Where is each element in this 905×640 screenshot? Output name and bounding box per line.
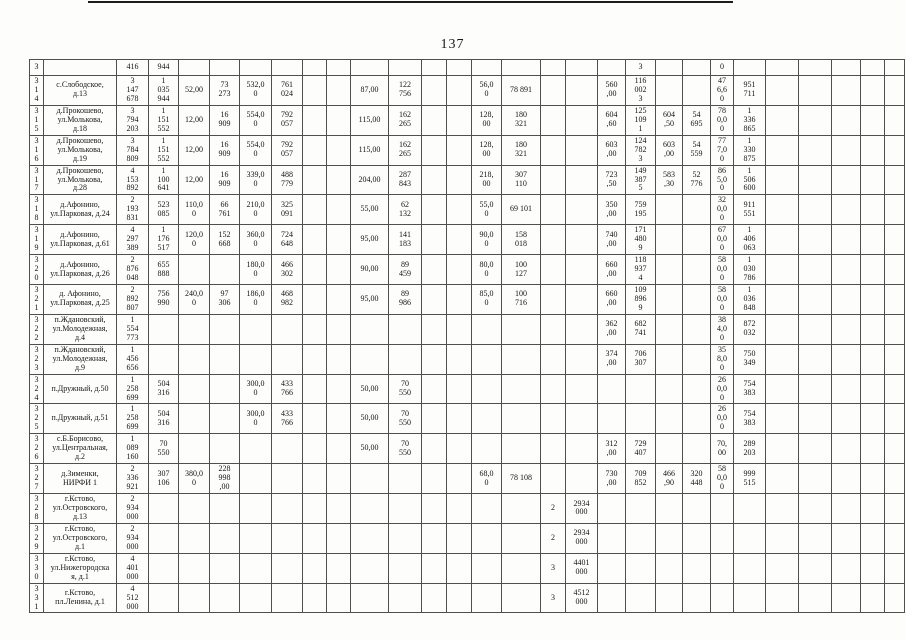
value-cell — [179, 523, 210, 553]
value-cell: 2 876 048 — [117, 255, 149, 285]
value-cell: 70 550 — [149, 434, 179, 464]
value-cell — [447, 583, 472, 613]
value-cell — [566, 404, 598, 434]
address-cell: г.Кстово, ул.Нижегородска я, д.1 — [44, 553, 117, 583]
value-cell — [656, 285, 683, 315]
value-cell — [303, 404, 327, 434]
value-cell: 85,0 0 — [472, 285, 502, 315]
value-cell: 1 151 552 — [149, 135, 179, 165]
value-cell: 120,0 0 — [179, 225, 210, 255]
address-cell: д. Афонино, ул.Парковая, д.25 — [44, 285, 117, 315]
value-cell — [541, 344, 566, 374]
table-row: 341694430 — [30, 60, 905, 76]
value-cell — [502, 60, 541, 76]
value-cell — [541, 285, 566, 315]
row-number-cell: 3 1 4 — [30, 76, 44, 106]
value-cell: 70 550 — [389, 374, 422, 404]
value-cell — [472, 553, 502, 583]
value-cell — [766, 314, 799, 344]
value-cell — [272, 434, 303, 464]
value-cell — [541, 195, 566, 225]
value-cell — [832, 583, 861, 613]
value-cell: 12,00 — [179, 165, 210, 195]
value-cell — [502, 583, 541, 613]
value-cell: 603 ,00 — [598, 135, 626, 165]
value-cell — [472, 494, 502, 524]
value-cell — [327, 165, 351, 195]
value-cell: 325 091 — [272, 195, 303, 225]
value-cell — [149, 494, 179, 524]
value-cell: 1 554 773 — [117, 314, 149, 344]
row-number-cell: 3 2 7 — [30, 464, 44, 494]
table-row: 3 2 2п.Ждановский, ул.Молодежная, д.41 5… — [30, 314, 905, 344]
value-cell — [861, 553, 885, 583]
table-row: 3 1 9д.Афонино, ул.Парковая, д.614 297 3… — [30, 225, 905, 255]
value-cell — [447, 76, 472, 106]
value-cell — [766, 60, 799, 76]
value-cell — [149, 523, 179, 553]
row-number-cell: 3 3 0 — [30, 553, 44, 583]
value-cell — [766, 434, 799, 464]
value-cell: 115,00 — [351, 105, 389, 135]
value-cell — [861, 314, 885, 344]
value-cell — [832, 76, 861, 106]
value-cell: 180 321 — [502, 135, 541, 165]
value-cell — [422, 105, 447, 135]
value-cell: 2 193 831 — [117, 195, 149, 225]
value-cell — [272, 523, 303, 553]
value-cell: 38 4,0 0 — [711, 314, 734, 344]
value-cell — [799, 314, 832, 344]
value-cell: 1 030 786 — [734, 255, 766, 285]
value-cell — [566, 434, 598, 464]
value-cell: 951 711 — [734, 76, 766, 106]
value-cell — [149, 583, 179, 613]
value-cell — [683, 523, 711, 553]
value-cell: 761 024 — [272, 76, 303, 106]
value-cell: 152 668 — [210, 225, 240, 255]
value-cell — [861, 344, 885, 374]
value-cell — [541, 135, 566, 165]
value-cell — [766, 583, 799, 613]
address-cell: с.Слободское, д.13 — [44, 76, 117, 106]
value-cell — [656, 494, 683, 524]
value-cell — [327, 285, 351, 315]
value-cell — [179, 60, 210, 76]
value-cell — [422, 195, 447, 225]
value-cell: 66 761 — [210, 195, 240, 225]
value-cell — [447, 434, 472, 464]
value-cell — [656, 255, 683, 285]
value-cell — [799, 225, 832, 255]
data-table: 3416944303 1 4с.Слободское, д.133 147 67… — [29, 59, 905, 613]
value-cell — [351, 523, 389, 553]
value-cell — [683, 344, 711, 374]
value-cell — [566, 344, 598, 374]
table-row: 3 2 7д.Зименки, НИРФИ 12 336 921307 1063… — [30, 464, 905, 494]
value-cell — [447, 195, 472, 225]
value-cell — [832, 165, 861, 195]
value-cell — [626, 404, 656, 434]
value-cell — [327, 434, 351, 464]
value-cell: 52,00 — [179, 76, 210, 106]
value-cell — [799, 76, 832, 106]
value-cell: 69 101 — [502, 195, 541, 225]
value-cell — [210, 60, 240, 76]
value-cell: 58 0,0 0 — [711, 285, 734, 315]
value-cell — [179, 344, 210, 374]
value-cell — [861, 434, 885, 464]
value-cell — [832, 494, 861, 524]
address-cell: д.Афонино, ул.Парковая, д.61 — [44, 225, 117, 255]
value-cell — [351, 583, 389, 613]
value-cell — [303, 255, 327, 285]
value-cell — [422, 60, 447, 76]
value-cell — [240, 494, 272, 524]
value-cell — [832, 135, 861, 165]
value-cell — [502, 553, 541, 583]
value-cell: 380,0 0 — [179, 464, 210, 494]
value-cell — [303, 60, 327, 76]
value-cell — [861, 583, 885, 613]
value-cell: 944 — [149, 60, 179, 76]
value-cell: 1 176 517 — [149, 225, 179, 255]
value-cell: 158 018 — [502, 225, 541, 255]
table-row: 3 2 0д.Афонино, ул.Парковая, д.262 876 0… — [30, 255, 905, 285]
value-cell — [656, 225, 683, 255]
value-cell — [472, 60, 502, 76]
value-cell: 77 7,0 0 — [711, 135, 734, 165]
value-cell — [149, 553, 179, 583]
value-cell: 660 ,00 — [598, 285, 626, 315]
value-cell — [179, 404, 210, 434]
address-cell: д.Афонино, ул.Парковая, д.24 — [44, 195, 117, 225]
row-number-cell: 3 2 4 — [30, 374, 44, 404]
value-cell — [422, 404, 447, 434]
value-cell — [799, 60, 832, 76]
value-cell: 1 330 875 — [734, 135, 766, 165]
value-cell — [683, 374, 711, 404]
value-cell: 109 896 9 — [626, 285, 656, 315]
value-cell — [832, 523, 861, 553]
value-cell — [885, 165, 905, 195]
value-cell — [766, 165, 799, 195]
scan-edge-line — [88, 1, 733, 3]
value-cell — [303, 105, 327, 135]
value-cell — [566, 255, 598, 285]
value-cell — [327, 523, 351, 553]
value-cell: 2 892 807 — [117, 285, 149, 315]
value-cell: 70, 00 — [711, 434, 734, 464]
value-cell: 186,0 0 — [240, 285, 272, 315]
value-cell — [766, 553, 799, 583]
value-cell — [598, 494, 626, 524]
value-cell — [885, 285, 905, 315]
value-cell: 141 183 — [389, 225, 422, 255]
value-cell: 488 779 — [272, 165, 303, 195]
value-cell: 682 741 — [626, 314, 656, 344]
value-cell: 1 036 848 — [734, 285, 766, 315]
value-cell — [447, 255, 472, 285]
row-number-cell: 3 1 5 — [30, 105, 44, 135]
value-cell: 416 — [117, 60, 149, 76]
value-cell — [327, 553, 351, 583]
value-cell — [541, 404, 566, 434]
value-cell — [656, 553, 683, 583]
value-cell: 1 258 699 — [117, 404, 149, 434]
value-cell — [683, 195, 711, 225]
table-row: 3 3 1г.Кстово, пл.Ленина, д.14 512 00034… — [30, 583, 905, 613]
value-cell: 754 383 — [734, 374, 766, 404]
value-cell — [683, 404, 711, 434]
value-cell — [327, 135, 351, 165]
value-cell: 2 934 000 — [117, 494, 149, 524]
address-cell: с.Б.Борисово, ул.Центральная, д.2 — [44, 434, 117, 464]
value-cell — [422, 165, 447, 195]
value-cell — [766, 76, 799, 106]
value-cell — [447, 464, 472, 494]
value-cell — [598, 60, 626, 76]
value-cell: 55,00 — [351, 195, 389, 225]
value-cell — [351, 344, 389, 374]
value-cell — [472, 314, 502, 344]
value-cell — [656, 60, 683, 76]
value-cell: 287 843 — [389, 165, 422, 195]
value-cell — [472, 434, 502, 464]
value-cell: 1 406 063 — [734, 225, 766, 255]
value-cell — [210, 583, 240, 613]
value-cell: 115,00 — [351, 135, 389, 165]
value-cell — [861, 494, 885, 524]
value-cell: 54 559 — [683, 135, 711, 165]
value-cell — [832, 105, 861, 135]
value-cell: 2934 000 — [566, 523, 598, 553]
value-cell — [683, 583, 711, 613]
value-cell: 70 550 — [389, 404, 422, 434]
row-number-cell: 3 2 9 — [30, 523, 44, 553]
value-cell — [389, 464, 422, 494]
value-cell: 750 349 — [734, 344, 766, 374]
value-cell: 724 648 — [272, 225, 303, 255]
value-cell — [766, 105, 799, 135]
value-cell — [240, 60, 272, 76]
value-cell — [447, 285, 472, 315]
value-cell: 1 151 552 — [149, 105, 179, 135]
value-cell — [149, 344, 179, 374]
value-cell: 730 ,00 — [598, 464, 626, 494]
value-cell — [210, 553, 240, 583]
row-number-cell: 3 3 1 — [30, 583, 44, 613]
value-cell — [327, 314, 351, 344]
value-cell — [541, 374, 566, 404]
value-cell: 16 909 — [210, 165, 240, 195]
value-cell — [566, 314, 598, 344]
value-cell: 709 852 — [626, 464, 656, 494]
value-cell — [861, 404, 885, 434]
value-cell — [327, 255, 351, 285]
value-cell — [832, 434, 861, 464]
value-cell — [472, 404, 502, 434]
value-cell — [832, 464, 861, 494]
value-cell — [303, 523, 327, 553]
value-cell — [303, 135, 327, 165]
value-cell: 4 153 892 — [117, 165, 149, 195]
value-cell — [566, 76, 598, 106]
address-cell: п.Ждановский, ул.Молодежная, д.4 — [44, 314, 117, 344]
value-cell: 26 0,0 0 — [711, 404, 734, 434]
value-cell — [447, 105, 472, 135]
value-cell — [541, 314, 566, 344]
value-cell — [303, 553, 327, 583]
value-cell — [626, 523, 656, 553]
value-cell: 110,0 0 — [179, 195, 210, 225]
value-cell — [832, 344, 861, 374]
value-cell — [832, 314, 861, 344]
value-cell — [541, 165, 566, 195]
value-cell — [179, 314, 210, 344]
value-cell: 4 512 000 — [117, 583, 149, 613]
value-cell: 218, 00 — [472, 165, 502, 195]
value-cell — [799, 195, 832, 225]
value-cell: 180,0 0 — [240, 255, 272, 285]
value-cell: 729 407 — [626, 434, 656, 464]
value-cell: 78 891 — [502, 76, 541, 106]
value-cell: 73 273 — [210, 76, 240, 106]
value-cell — [422, 583, 447, 613]
value-cell: 162 265 — [389, 105, 422, 135]
value-cell: 124 782 3 — [626, 135, 656, 165]
value-cell — [885, 494, 905, 524]
value-cell — [885, 225, 905, 255]
value-cell: 300,0 0 — [240, 404, 272, 434]
value-cell — [179, 583, 210, 613]
value-cell: 128, 00 — [472, 135, 502, 165]
value-cell: 78 108 — [502, 464, 541, 494]
value-cell — [541, 255, 566, 285]
value-cell — [766, 135, 799, 165]
value-cell: 554,0 0 — [240, 135, 272, 165]
value-cell: 433 766 — [272, 374, 303, 404]
address-cell: г.Кстово, ул.Островского, д.13 — [44, 494, 117, 524]
value-cell — [885, 553, 905, 583]
value-cell: 70 550 — [389, 434, 422, 464]
value-cell: 655 888 — [149, 255, 179, 285]
value-cell — [683, 434, 711, 464]
value-cell: 504 316 — [149, 374, 179, 404]
value-cell — [502, 523, 541, 553]
value-cell: 122 756 — [389, 76, 422, 106]
value-cell: 300,0 0 — [240, 374, 272, 404]
value-cell — [327, 76, 351, 106]
value-cell — [272, 464, 303, 494]
value-cell — [541, 105, 566, 135]
table-row: 3 2 3п.Ждановский, ул.Молодежная, д.91 4… — [30, 344, 905, 374]
value-cell — [389, 314, 422, 344]
value-cell — [472, 523, 502, 553]
table-row: 3 2 8г.Кстово, ул.Островского, д.132 934… — [30, 494, 905, 524]
value-cell — [303, 165, 327, 195]
value-cell — [711, 523, 734, 553]
value-cell: 35 8,0 0 — [711, 344, 734, 374]
value-cell — [799, 583, 832, 613]
value-cell — [766, 523, 799, 553]
value-cell — [861, 285, 885, 315]
value-cell: 362 ,00 — [598, 314, 626, 344]
value-cell — [799, 344, 832, 374]
value-cell: 307 106 — [149, 464, 179, 494]
value-cell — [832, 225, 861, 255]
value-cell — [303, 76, 327, 106]
value-cell: 603 ,00 — [656, 135, 683, 165]
row-number-cell: 3 2 3 — [30, 344, 44, 374]
value-cell — [734, 60, 766, 76]
value-cell: 87,00 — [351, 76, 389, 106]
table-body: 3416944303 1 4с.Слободское, д.133 147 67… — [30, 60, 905, 613]
value-cell — [422, 464, 447, 494]
value-cell: 532,0 0 — [240, 76, 272, 106]
value-cell — [327, 195, 351, 225]
address-cell: г.Кстово, пл.Ленина, д.1 — [44, 583, 117, 613]
value-cell — [832, 285, 861, 315]
value-cell — [472, 583, 502, 613]
scanned-page: 137 3416944303 1 4с.Слободское, д.133 14… — [0, 0, 905, 640]
value-cell — [799, 404, 832, 434]
value-cell — [766, 255, 799, 285]
value-cell: 16 909 — [210, 105, 240, 135]
address-cell: г.Кстово, ул.Островского, д.1 — [44, 523, 117, 553]
value-cell — [303, 344, 327, 374]
value-cell — [656, 314, 683, 344]
value-cell: 1 456 656 — [117, 344, 149, 374]
value-cell — [683, 60, 711, 76]
value-cell — [422, 225, 447, 255]
value-cell — [447, 494, 472, 524]
value-cell: 504 316 — [149, 404, 179, 434]
value-cell: 3 — [541, 583, 566, 613]
value-cell — [422, 553, 447, 583]
value-cell — [240, 553, 272, 583]
value-cell — [240, 583, 272, 613]
value-cell — [541, 464, 566, 494]
value-cell — [272, 494, 303, 524]
value-cell — [656, 583, 683, 613]
value-cell — [711, 553, 734, 583]
value-cell — [422, 523, 447, 553]
value-cell — [303, 225, 327, 255]
address-cell — [44, 60, 117, 76]
value-cell — [766, 285, 799, 315]
row-number-cell: 3 1 9 — [30, 225, 44, 255]
value-cell — [656, 195, 683, 225]
value-cell: 67 0,0 0 — [711, 225, 734, 255]
value-cell — [502, 434, 541, 464]
value-cell — [626, 374, 656, 404]
value-cell: 3 — [626, 60, 656, 76]
value-cell: 204,00 — [351, 165, 389, 195]
value-cell — [447, 225, 472, 255]
row-number-cell: 3 2 0 — [30, 255, 44, 285]
value-cell: 706 307 — [626, 344, 656, 374]
value-cell — [566, 225, 598, 255]
row-number-cell: 3 2 1 — [30, 285, 44, 315]
value-cell: 1 336 865 — [734, 105, 766, 135]
value-cell — [799, 464, 832, 494]
value-cell — [303, 494, 327, 524]
address-cell: п.Дружный, д.50 — [44, 374, 117, 404]
value-cell — [656, 523, 683, 553]
value-cell — [766, 404, 799, 434]
value-cell — [799, 105, 832, 135]
